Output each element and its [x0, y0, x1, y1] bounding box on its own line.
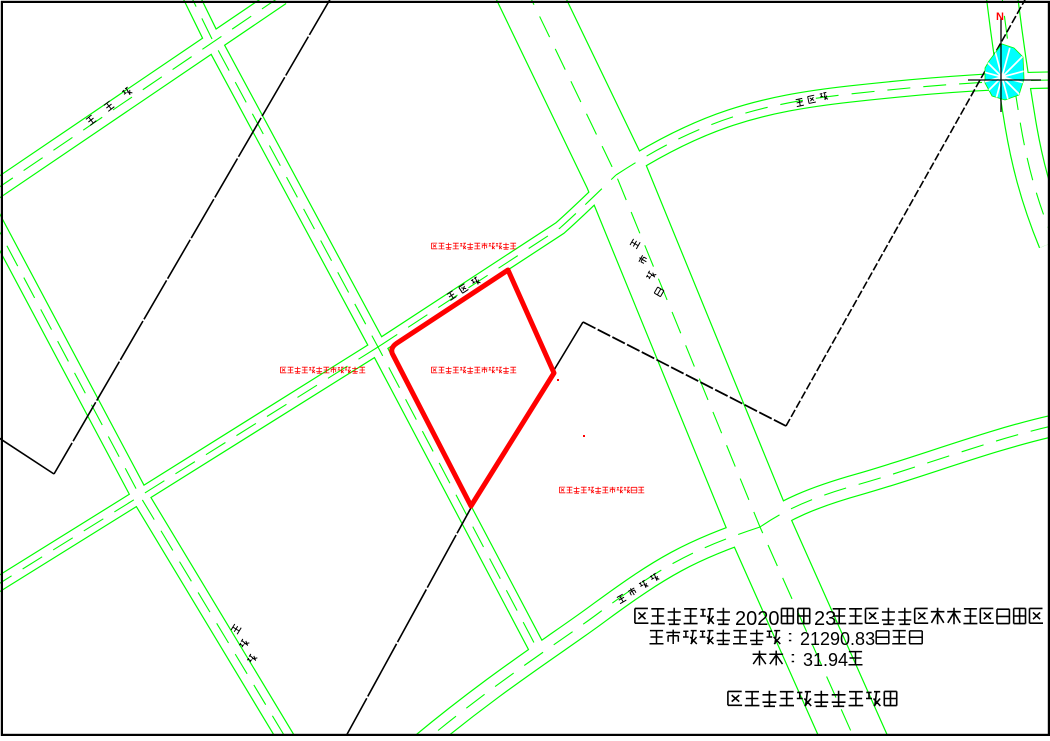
svg-text:N: N	[996, 11, 1004, 23]
svg-text:31.94: 31.94	[803, 650, 848, 670]
svg-text:2020: 2020	[735, 608, 780, 630]
svg-text:23: 23	[814, 608, 836, 630]
svg-text:21290.83: 21290.83	[800, 629, 875, 649]
